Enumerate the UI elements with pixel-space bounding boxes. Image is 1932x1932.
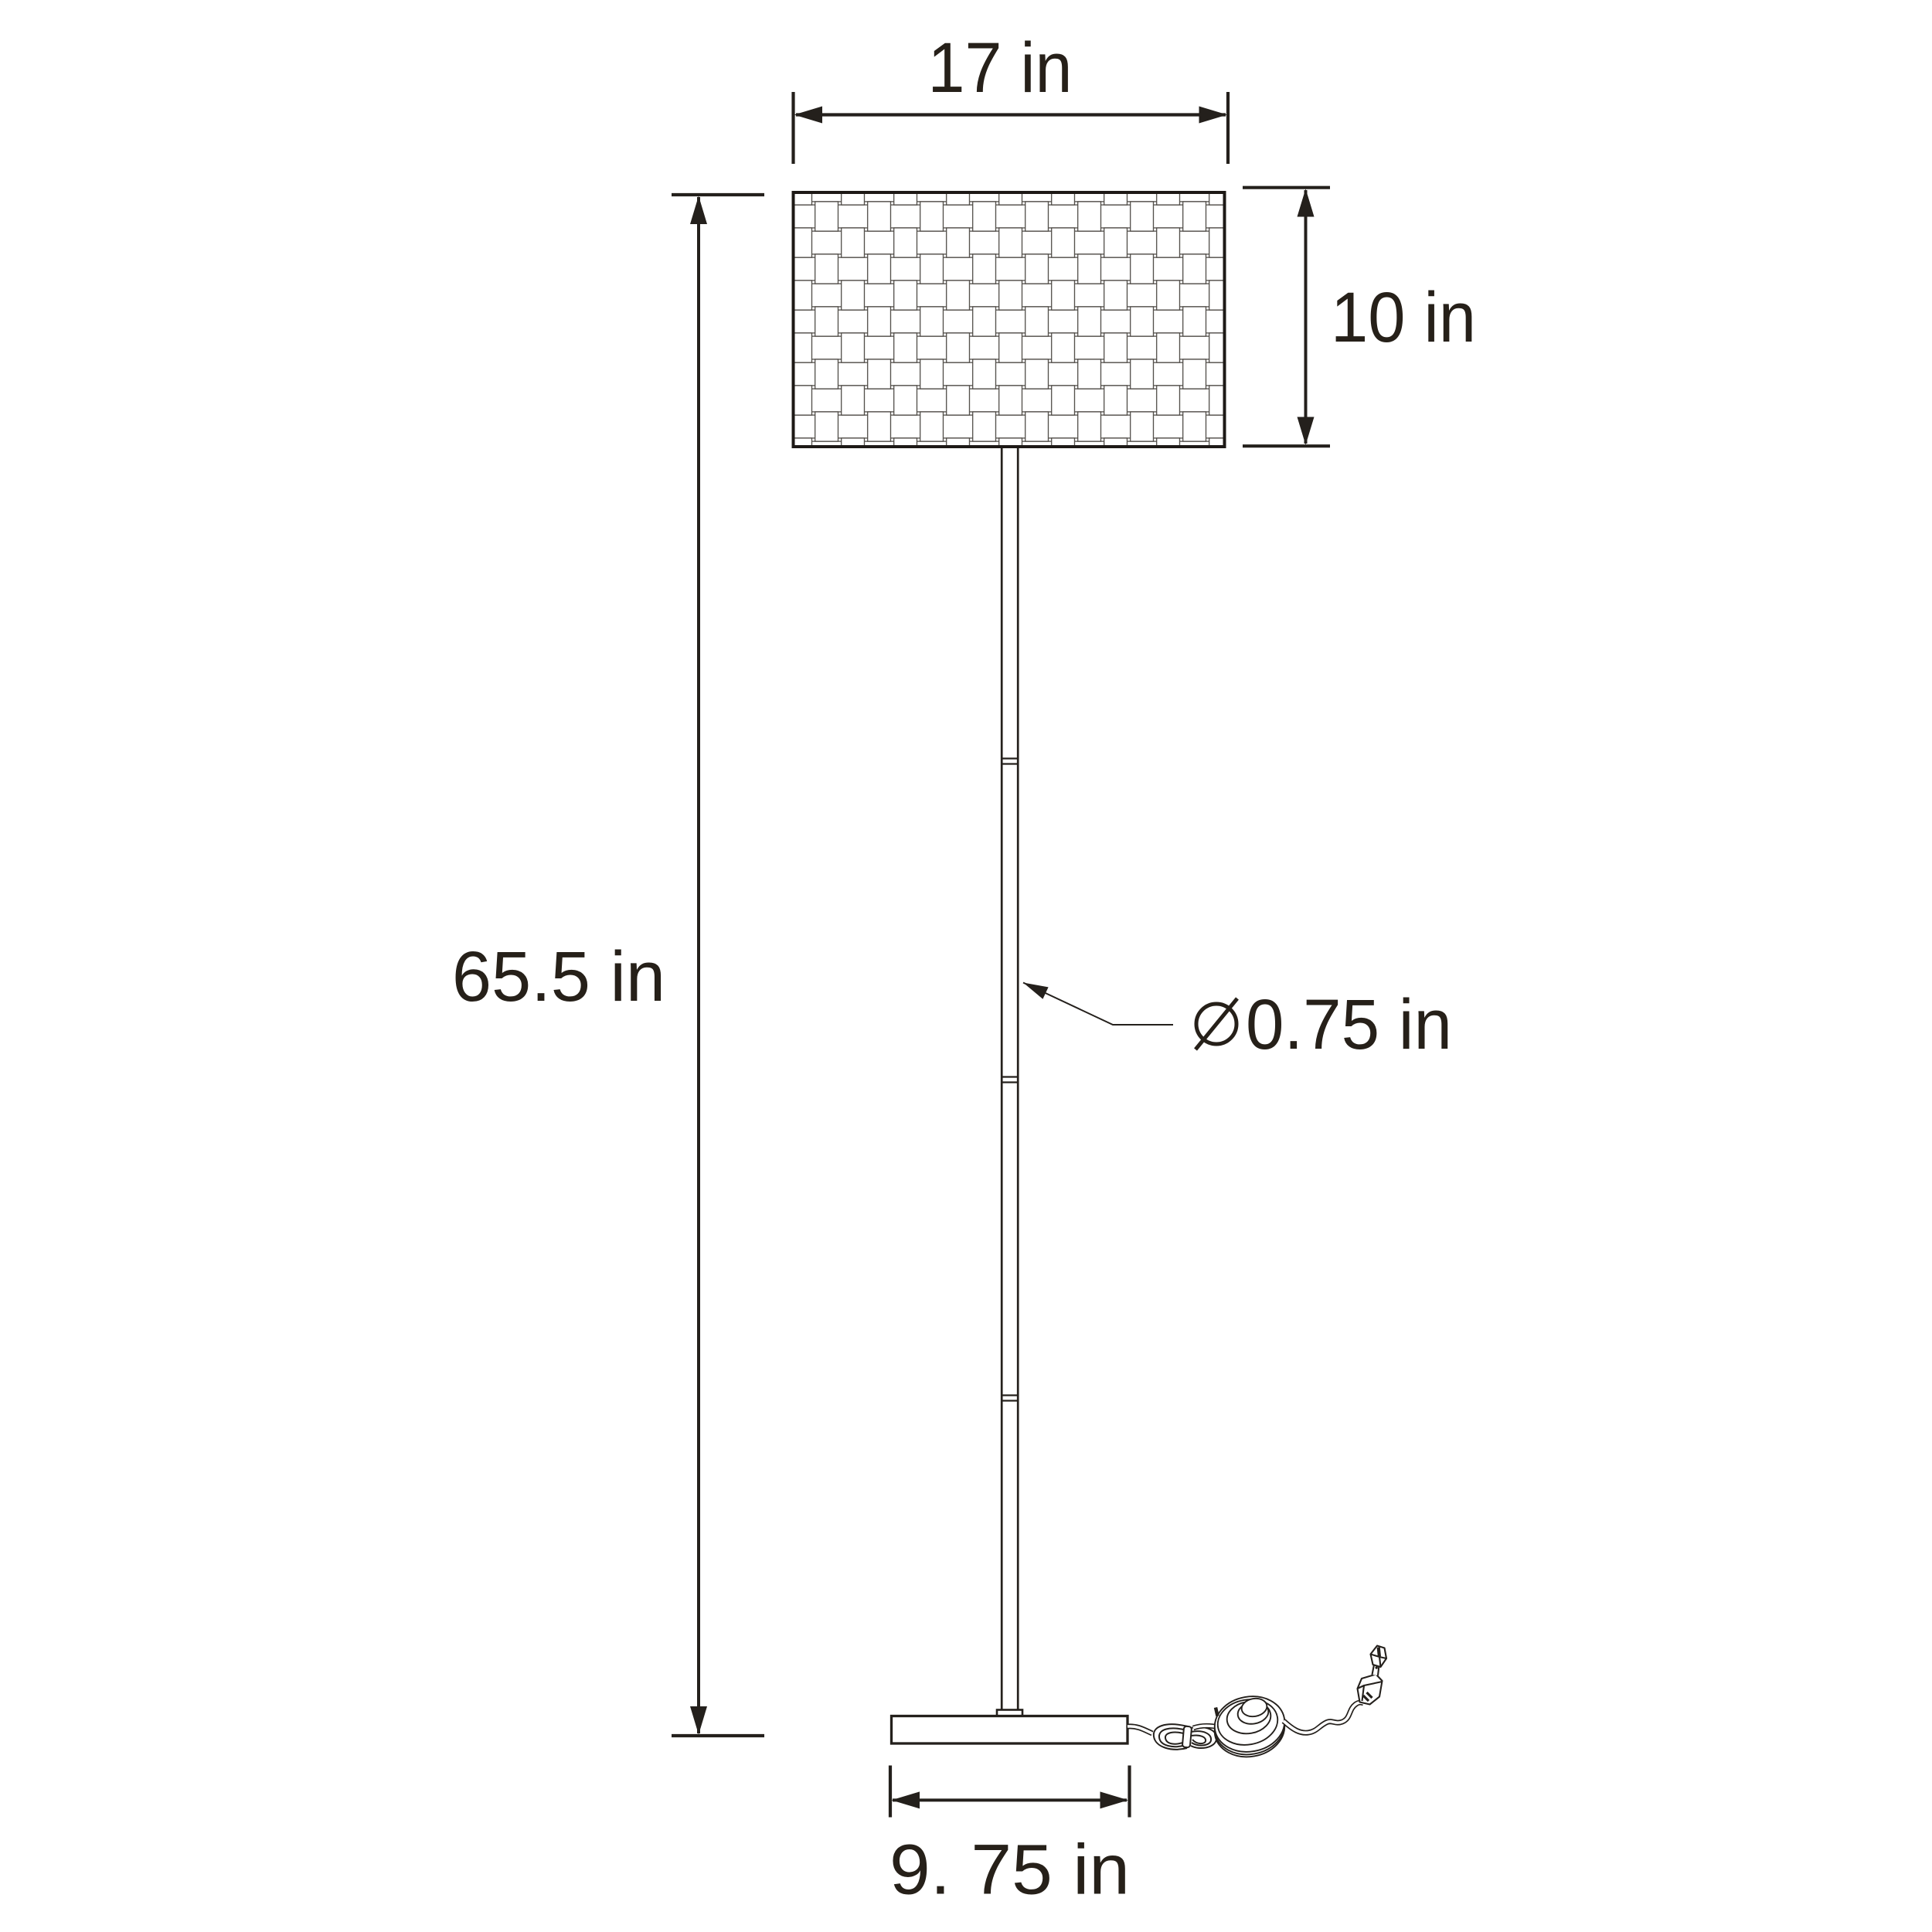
svg-text:0.75 in: 0.75 in: [1246, 985, 1452, 1064]
svg-text:9. 75 in: 9. 75 in: [889, 1831, 1130, 1910]
svg-text:10 in: 10 in: [1331, 278, 1476, 357]
svg-text:65.5 in: 65.5 in: [452, 937, 665, 1016]
svg-text:17 in: 17 in: [928, 29, 1073, 107]
